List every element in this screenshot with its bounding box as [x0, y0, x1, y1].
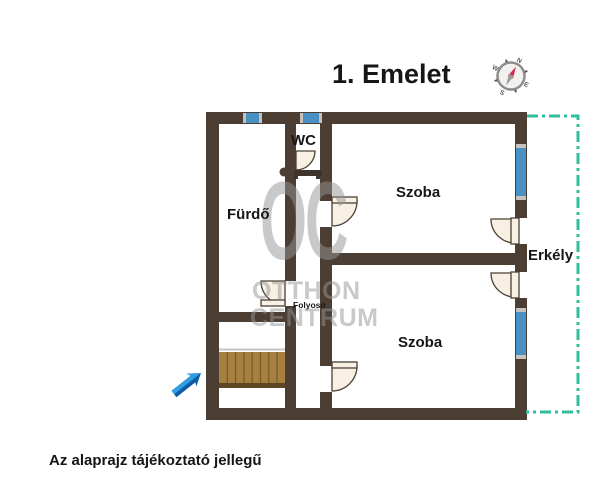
door-arc-wc — [296, 151, 315, 170]
entry-arrow-dark-face — [172, 373, 201, 397]
wall-room-divider — [320, 253, 527, 265]
wall-corridor-right — [320, 124, 332, 408]
room-label-hallway: Folyosó — [293, 300, 326, 310]
window-top-bathroom — [243, 113, 262, 123]
wall-corridor-left — [285, 124, 296, 408]
wall-bottom — [206, 408, 527, 420]
door-leaf-balcony-bottom — [511, 272, 519, 298]
room-label-balcony: Erkély — [528, 247, 573, 264]
door-leaf-room-bottom — [332, 362, 357, 368]
room-label-room-bottom: Szoba — [398, 334, 442, 351]
stairs-bottom-edge — [219, 383, 285, 388]
door-arc-room-top — [332, 201, 357, 226]
opening-room-top-door — [320, 201, 332, 227]
balcony-outline — [526, 116, 578, 412]
page-title: 1. Emelet — [332, 59, 451, 90]
disclaimer-text: Az alaprajz tájékoztató jellegű — [49, 452, 262, 469]
wall-bathroom-stairs-divider — [206, 312, 296, 322]
room-label-wc: WC — [291, 132, 316, 149]
stairs-top-line — [219, 349, 285, 351]
wc-door-threshold — [294, 170, 322, 179]
window-right-room-bottom — [516, 308, 526, 359]
window-right-room-top — [516, 144, 526, 200]
door-leaf-room-top — [332, 197, 357, 203]
door-leaf-balcony-top — [511, 218, 519, 244]
doors — [261, 151, 519, 391]
window-top-wc — [300, 113, 322, 123]
door-arc-room-bottom — [332, 366, 357, 391]
floor-plan-drawing: N E S W — [0, 0, 610, 500]
room-label-bathroom: Fürdő — [227, 206, 270, 223]
room-label-room-top: Szoba — [396, 184, 440, 201]
opening-room-bottom-door — [320, 366, 332, 392]
wall-left — [206, 112, 219, 420]
compass-icon: N E S W — [482, 48, 539, 106]
door-hinge-dot — [280, 168, 289, 177]
entry-arrow-icon — [172, 373, 201, 397]
door-leaf-bathroom — [261, 300, 285, 306]
compass-letter-s: S — [498, 89, 506, 98]
stairs — [219, 349, 285, 389]
floor-plan-page: N E S W OC OTTHON CENTRUM 1. Emelet WC F… — [0, 0, 610, 500]
